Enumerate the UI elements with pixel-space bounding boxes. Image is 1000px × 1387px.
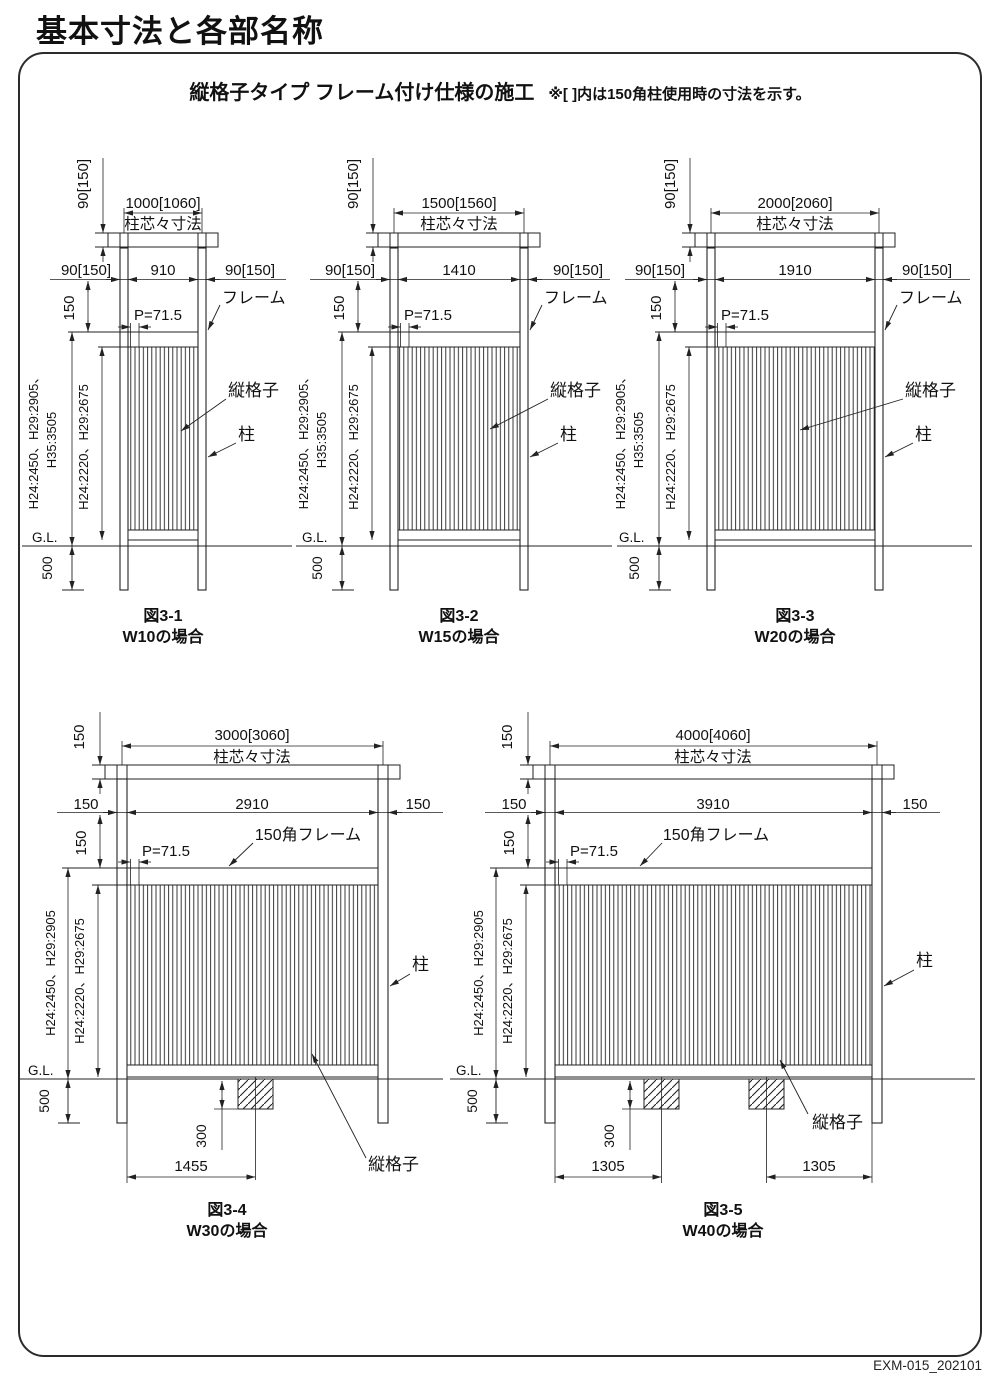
document-code: EXM-015_202101 (0, 1358, 982, 1373)
dim-500-text: 500 (464, 1089, 480, 1113)
plan-view (95, 233, 218, 247)
right-post (872, 779, 882, 1123)
frame-label: フレーム (899, 290, 963, 307)
drawing-sheet: 基本寸法と各部名称 縦格子タイプ フレーム付け仕様の施工 ※[ ]内は150角柱… (0, 0, 1000, 1387)
frame150-label: 150角フレーム (663, 826, 769, 844)
height-outer-line1: H24:2450、H29:2905、 (26, 371, 41, 510)
bottom-rail (398, 530, 520, 540)
dim-bar-depth-text: 150 (71, 724, 88, 749)
caption-number: 図3-1 (53, 606, 273, 627)
lattice-panel (127, 885, 378, 1065)
dim-span-text: 910 (150, 262, 175, 279)
pitch-text: P=71.5 (404, 307, 452, 324)
dim-300-text: 300 (193, 1124, 209, 1148)
gl-label: G.L. (619, 530, 645, 545)
height-outer-line2: H35:3505 (44, 412, 59, 468)
dim-side-right-text: 90[150] (225, 262, 275, 279)
caption-case: W15の場合 (349, 627, 569, 648)
dim-span-text: 3910 (696, 796, 729, 813)
height-outer-line2: H35:3505 (631, 412, 646, 468)
ground (20, 1079, 443, 1123)
ground (450, 1079, 975, 1123)
ground (617, 546, 972, 590)
height-inner: H24:2220、H29:2675 (76, 384, 91, 510)
cc-label: 柱芯々寸法 (674, 748, 752, 766)
dim-bar-depth-text: 90[150] (662, 159, 679, 209)
dim-side-left-text: 150 (501, 796, 526, 813)
height-outer-line2: H35:3505 (314, 412, 329, 468)
dim-side-right-text: 150 (405, 796, 430, 813)
bottom-rail (128, 530, 198, 540)
dim-500-text: 500 (626, 556, 642, 580)
dim-total-text: 1000[1060] (125, 195, 200, 212)
right-post (875, 248, 883, 590)
height-outer: H24:2450、H29:2905 (471, 910, 486, 1036)
dim-300-text: 300 (601, 1124, 617, 1148)
left-post (120, 248, 128, 590)
lattice-label: 縦格子 (368, 1155, 419, 1174)
height-inner: H24:2220、H29:2675 (663, 384, 678, 510)
post-label: 柱 (238, 425, 255, 444)
left-post (707, 248, 715, 590)
pitch-text: P=71.5 (134, 307, 182, 324)
lattice-label: 縦格子 (228, 381, 279, 400)
ground (296, 546, 612, 590)
post-label: 柱 (916, 951, 933, 970)
right-post (378, 779, 388, 1123)
caption-fig-3-1: 図3-1 W10の場合 (53, 606, 273, 648)
dim-side-left-text: 150 (73, 796, 98, 813)
pitch-text: P=71.5 (721, 307, 769, 324)
plan-view (682, 233, 895, 247)
dim-500-text: 500 (39, 556, 55, 580)
dim-150-text: 150 (73, 830, 90, 855)
caption-fig-3-5: 図3-5 W40の場合 (613, 1200, 833, 1242)
dim-footing-span2-text: 1305 (802, 1158, 835, 1175)
caption-number: 図3-2 (349, 606, 569, 627)
cc-label: 柱芯々寸法 (124, 215, 202, 233)
dim-pitch (118, 859, 151, 885)
dim-bar-depth-text: 150 (499, 724, 516, 749)
dim-500-text: 500 (309, 556, 325, 580)
dim-side-right-text: 150 (902, 796, 927, 813)
caption-number: 図3-3 (685, 606, 905, 627)
frame-label: フレーム (222, 290, 286, 307)
lattice-label: 縦格子 (550, 381, 601, 400)
dim-pitch (388, 323, 421, 347)
frame150-label: 150角フレーム (255, 826, 361, 844)
figure-3-2-drawing: 90[150] 1500[1560] 柱芯々寸法 90[150] 1410 90… (300, 130, 615, 602)
dim-150-text: 150 (501, 830, 518, 855)
dim-total-text: 2000[2060] (757, 195, 832, 212)
bottom-rail (555, 1065, 872, 1077)
dim-footing-span-text: 1455 (174, 1158, 207, 1175)
figure-3-3-drawing: 90[150] 2000[2060] 柱芯々寸法 90[150] 1910 90… (615, 130, 980, 602)
lattice-label: 縦格子 (905, 381, 956, 400)
cc-label: 柱芯々寸法 (756, 215, 834, 233)
post-label: 柱 (560, 425, 577, 444)
lattice-label: 縦格子 (812, 1113, 863, 1132)
dim-total-text: 4000[4060] (675, 727, 750, 744)
height-inner: H24:2220、H29:2675 (72, 918, 87, 1044)
caption-fig-3-4: 図3-4 W30の場合 (117, 1200, 337, 1242)
bottom-rail (127, 1065, 378, 1077)
pitch-text: P=71.5 (570, 843, 618, 860)
box-header: 縦格子タイプ フレーム付け仕様の施工 ※[ ]内は150角柱使用時の寸法を示す。 (0, 76, 1000, 105)
page-title: 基本寸法と各部名称 (36, 6, 324, 51)
figure-3-1-drawing: 90[150] 1000[1060] 柱芯々寸法 90[150] 910 90[… (20, 130, 305, 602)
dim-side-left-text: 90[150] (61, 262, 111, 279)
caption-case: W40の場合 (613, 1221, 833, 1242)
dim-bar-depth-text: 90[150] (75, 159, 92, 209)
height-inner: H24:2220、H29:2675 (346, 384, 361, 510)
left-post (545, 779, 555, 1123)
post-label: 柱 (915, 425, 932, 444)
gl-label: G.L. (302, 530, 328, 545)
height-outer-line1: H24:2450、H29:2905、 (613, 371, 628, 510)
dim-150-text: 150 (61, 295, 78, 320)
ground (22, 546, 292, 590)
cc-label: 柱芯々寸法 (420, 215, 498, 233)
dim-500-text: 500 (36, 1089, 52, 1113)
gl-label: G.L. (32, 530, 58, 545)
left-post (117, 779, 127, 1123)
dim-bar-depth-text: 90[150] (345, 159, 362, 209)
left-post (390, 248, 398, 590)
spec-heading: 縦格子タイプ フレーム付け仕様の施工 (189, 76, 534, 105)
plan-view (520, 765, 894, 779)
dim-150-text: 150 (648, 295, 665, 320)
lattice-panel (398, 347, 520, 530)
post-label: 柱 (412, 955, 429, 974)
dim-pitch (705, 323, 738, 347)
figure-3-4-drawing: 150 3000[3060] 柱芯々寸法 150 2910 150 150角フレ… (20, 700, 445, 1210)
caption-case: W20の場合 (685, 627, 905, 648)
plan-view (366, 233, 540, 247)
dim-pitch (546, 859, 579, 885)
height-outer: H24:2450、H29:2905 (43, 910, 58, 1036)
right-post (198, 248, 206, 590)
dim-total-text: 1500[1560] (421, 195, 496, 212)
dim-span-text: 1410 (442, 262, 475, 279)
dim-total-text: 3000[3060] (214, 727, 289, 744)
dim-side-left-text: 90[150] (635, 262, 685, 279)
gl-label: G.L. (28, 1063, 54, 1078)
caption-number: 図3-4 (117, 1200, 337, 1221)
dim-pitch (118, 323, 151, 347)
figure-3-5-drawing: 150 4000[4060] 柱芯々寸法 150 3910 150 150角フレ… (450, 700, 980, 1210)
dim-side-left-text: 90[150] (325, 262, 375, 279)
height-inner: H24:2220、H29:2675 (500, 918, 515, 1044)
lattice-panel (715, 347, 875, 530)
dim-span-text: 1910 (778, 262, 811, 279)
dim-footing-span1-text: 1305 (591, 1158, 624, 1175)
frame-label: フレーム (544, 290, 608, 307)
dim-150-text: 150 (331, 295, 348, 320)
plan-view (92, 765, 400, 779)
dim-side-right-text: 90[150] (553, 262, 603, 279)
bottom-rail (715, 530, 875, 540)
caption-fig-3-2: 図3-2 W15の場合 (349, 606, 569, 648)
right-post (520, 248, 528, 590)
caption-case: W10の場合 (53, 627, 273, 648)
height-outer-line1: H24:2450、H29:2905、 (296, 371, 311, 510)
dim-span-text: 2910 (235, 796, 268, 813)
dim-side-right-text: 90[150] (902, 262, 952, 279)
caption-case: W30の場合 (117, 1221, 337, 1242)
cc-label: 柱芯々寸法 (213, 748, 291, 766)
caption-number: 図3-5 (613, 1200, 833, 1221)
lattice-panel (128, 347, 198, 530)
gl-label: G.L. (456, 1063, 482, 1078)
lattice-panel (555, 885, 872, 1065)
pitch-text: P=71.5 (142, 843, 190, 860)
spec-note: ※[ ]内は150角柱使用時の寸法を示す。 (548, 83, 810, 104)
caption-fig-3-3: 図3-3 W20の場合 (685, 606, 905, 648)
